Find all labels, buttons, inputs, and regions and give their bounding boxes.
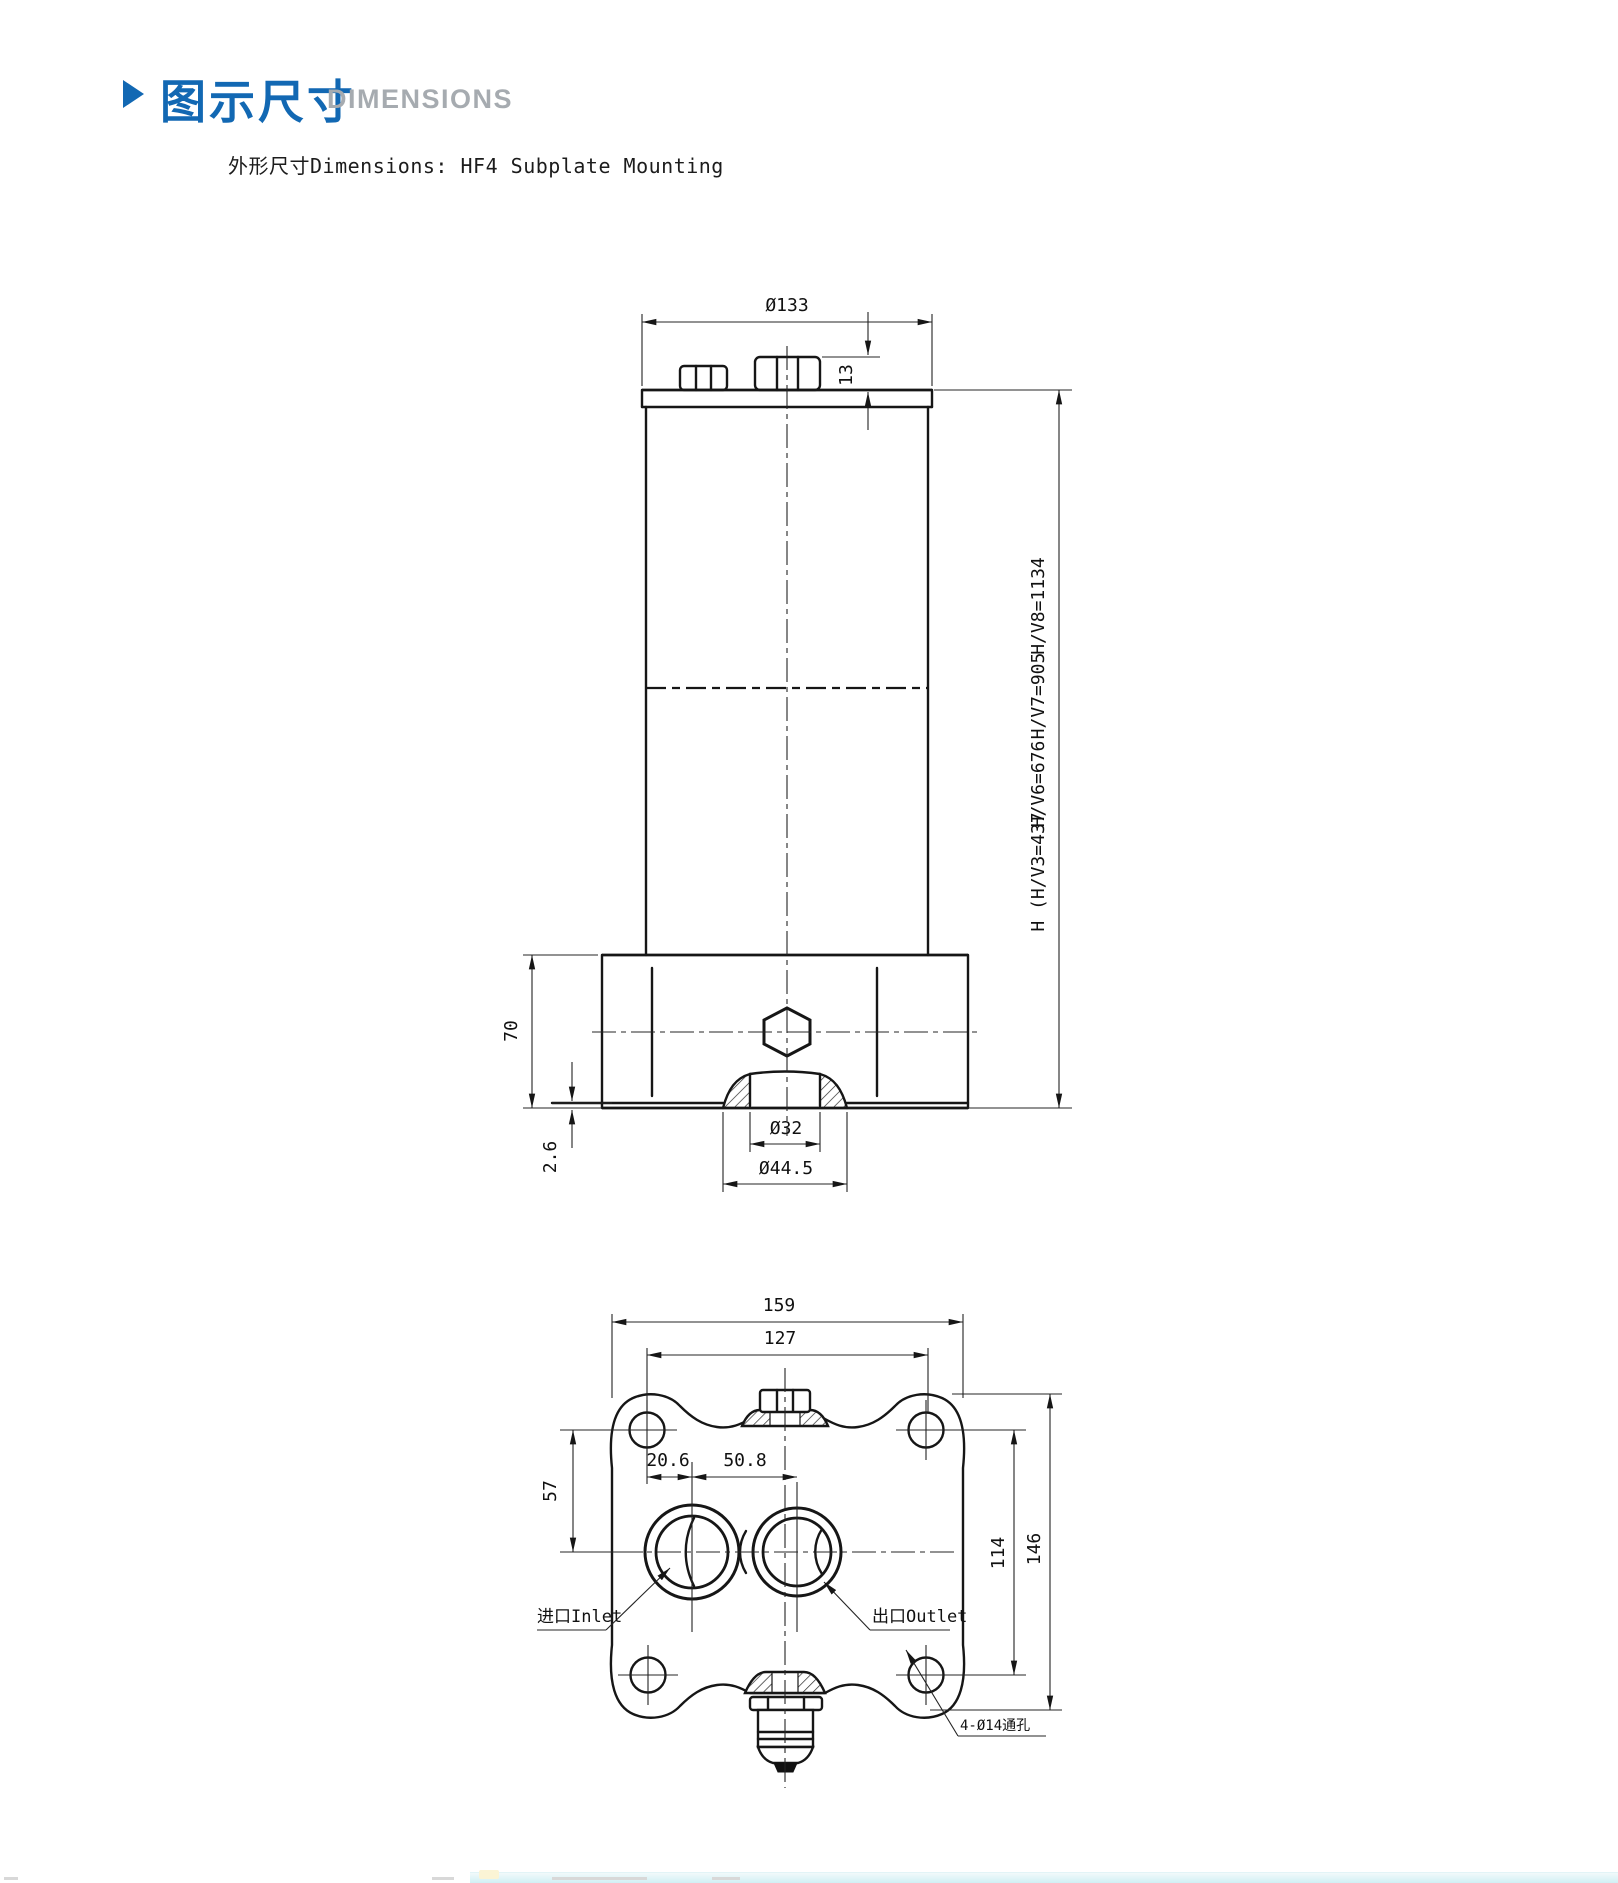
dim-port-vertical-offset: 57 bbox=[540, 1430, 643, 1552]
dim-top-diameter: Ø133 bbox=[642, 295, 932, 386]
dim-port-horizontal: 20.6 50.8 bbox=[646, 1446, 797, 1484]
dim-text-port-spacing: 50.8 bbox=[723, 1450, 766, 1471]
base-block bbox=[523, 955, 1072, 1108]
dim-text-cap-height: 13 bbox=[836, 364, 857, 386]
bottom-boss bbox=[723, 1072, 847, 1109]
dim-base-height: 70 bbox=[501, 955, 598, 1108]
holes-note-label: 4-Ø14通孔 bbox=[960, 1718, 1030, 1734]
bottom-view: 159 127 57 20.6 50.8 bbox=[537, 1295, 1062, 1788]
dim-text-base-height: 70 bbox=[501, 1020, 522, 1042]
front-view: Ø133 13 bbox=[501, 295, 1072, 1192]
footer-mark bbox=[552, 1877, 647, 1880]
dim-text-bolt-spacing-height: 114 bbox=[988, 1537, 1009, 1570]
dim-text-overall-height-plate: 146 bbox=[1024, 1533, 1045, 1566]
technical-drawing-svg: Ø133 13 bbox=[0, 0, 1618, 1883]
inlet-label: 进口Inlet bbox=[537, 1607, 622, 1627]
cap-nuts bbox=[680, 357, 820, 390]
dim-text-base-step: 2.6 bbox=[540, 1141, 561, 1174]
footer-mark bbox=[4, 1877, 18, 1880]
dim-text-height-v8: H/V8=1134 bbox=[1028, 557, 1049, 655]
inlet-callout: 进口Inlet bbox=[537, 1568, 670, 1630]
footer-mark bbox=[712, 1877, 740, 1880]
dim-text-inlet-offset: 20.6 bbox=[646, 1450, 689, 1471]
dim-text-boss-outer: Ø44.5 bbox=[759, 1158, 813, 1179]
footer-mark bbox=[432, 1877, 454, 1880]
dim-text-port-vertical-offset: 57 bbox=[540, 1480, 561, 1502]
dim-text-height-v7: H/V7=905 bbox=[1028, 653, 1049, 740]
dim-text-boss-inner: Ø32 bbox=[770, 1118, 803, 1139]
dim-bolt-spacing-height: 114 bbox=[944, 1430, 1026, 1675]
outlet-callout: 出口Outlet bbox=[824, 1582, 967, 1630]
dim-cap-height: 13 bbox=[822, 312, 880, 430]
dim-text-top-diameter: Ø133 bbox=[765, 295, 808, 316]
outlet-label: 出口Outlet bbox=[872, 1607, 967, 1627]
dim-text-overall-width: 159 bbox=[763, 1295, 796, 1316]
dim-boss-inner: Ø32 bbox=[750, 1112, 820, 1152]
dim-text-bolt-spacing-width: 127 bbox=[764, 1328, 797, 1349]
footer-accent-dot bbox=[479, 1870, 499, 1879]
datasheet-page: 图示尺寸 DIMENSIONS 外形尺寸Dimensions: HF4 Subp… bbox=[0, 0, 1618, 1883]
dim-text-height-v3: H (H/V3=437 bbox=[1028, 812, 1049, 931]
dim-overall-height: H/V8=1134 H/V7=905 H/V6=676 H (H/V3=437 bbox=[934, 390, 1072, 1108]
